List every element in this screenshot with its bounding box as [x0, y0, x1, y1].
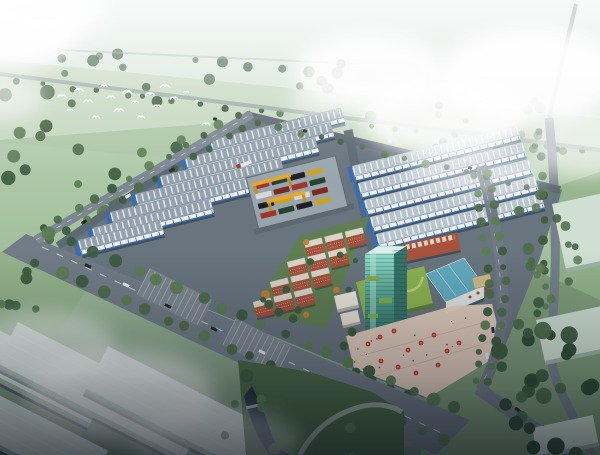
scene-canvas: [0, 0, 600, 455]
vignette: [0, 0, 600, 455]
architectural-rendering: [0, 0, 600, 455]
